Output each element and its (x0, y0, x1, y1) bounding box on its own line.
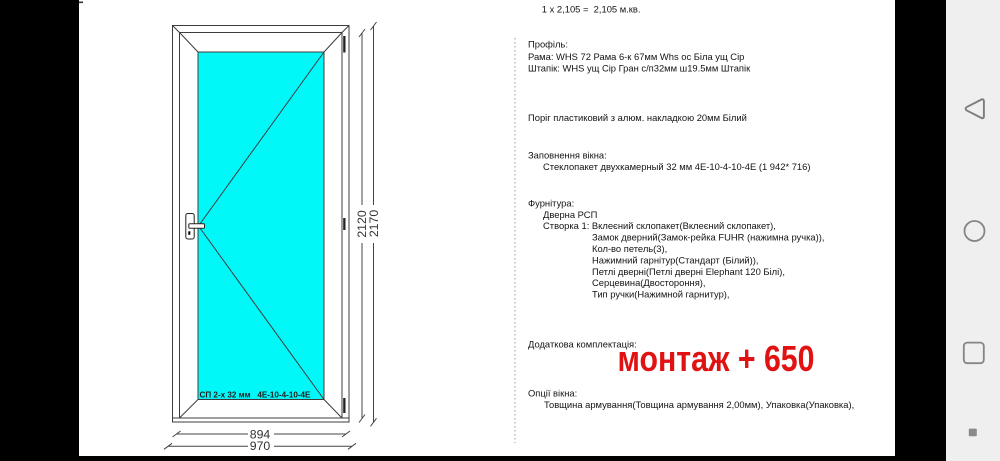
svg-text:СП 2-х 32 мм 4Е-10-4-10-4Е: СП 2-х 32 мм 4Е-10-4-10-4Е (200, 391, 312, 400)
svg-text:Фурнітура:: Фурнітура: (528, 198, 574, 209)
svg-text:Нажимний гарнітур(Стандарт (Бі: Нажимний гарнітур(Стандарт (Білий)), (592, 254, 759, 265)
svg-text:Петлі дверні(Петлі дверні Elep: Петлі дверні(Петлі дверні Elephant 120 Б… (592, 266, 785, 277)
svg-text:970: 970 (250, 439, 271, 453)
svg-text:Кол-во петель(3),: Кол-во петель(3), (592, 243, 667, 254)
svg-text:Товщина армування(Товщина арму: Товщина армування(Товщина армування 2,00… (544, 399, 854, 410)
svg-text:Тип ручки(Нажимной гарнитур),: Тип ручки(Нажимной гарнитур), (592, 289, 730, 300)
svg-text:Поріг пластиковий з алюм. накл: Поріг пластиковий з алюм. накладкою 20мм… (528, 112, 747, 123)
svg-text:Серцевина(Двостороння),: Серцевина(Двостороння), (592, 277, 706, 288)
svg-text:Профіль:: Профіль: (528, 39, 568, 50)
svg-text:монтаж + 650: монтаж + 650 (618, 339, 815, 379)
svg-text:Рама: WHS 72 Рама 6-к 67мм Whs: Рама: WHS 72 Рама 6-к 67мм Whs ос Біла у… (528, 51, 744, 62)
svg-text:Дверна РСП: Дверна РСП (543, 209, 597, 220)
svg-text:Створка 1: Вклеєний склопакет(: Створка 1: Вклеєний склопакет(Вклеєний с… (543, 220, 776, 231)
svg-text:Замок дверний(Замок-рейка FUHR: Замок дверний(Замок-рейка FUHR (нажимна … (592, 232, 825, 243)
svg-text:Заповнення вікна:: Заповнення вікна: (528, 149, 607, 160)
svg-text:Опції вікна:: Опції вікна: (528, 387, 577, 398)
svg-text:Стеклопакет двухкамерный 32 мм: Стеклопакет двухкамерный 32 мм 4Е-10-4-1… (543, 161, 810, 172)
svg-text:2170: 2170 (367, 210, 381, 238)
svg-text:Штапік: WHS ущ Сір Гран с/п32м: Штапік: WHS ущ Сір Гран с/п32мм ш19.5мм … (528, 63, 751, 74)
svg-text:1 х 2,105 = 2,105 м.кв.: 1 х 2,105 = 2,105 м.кв. (542, 4, 641, 15)
